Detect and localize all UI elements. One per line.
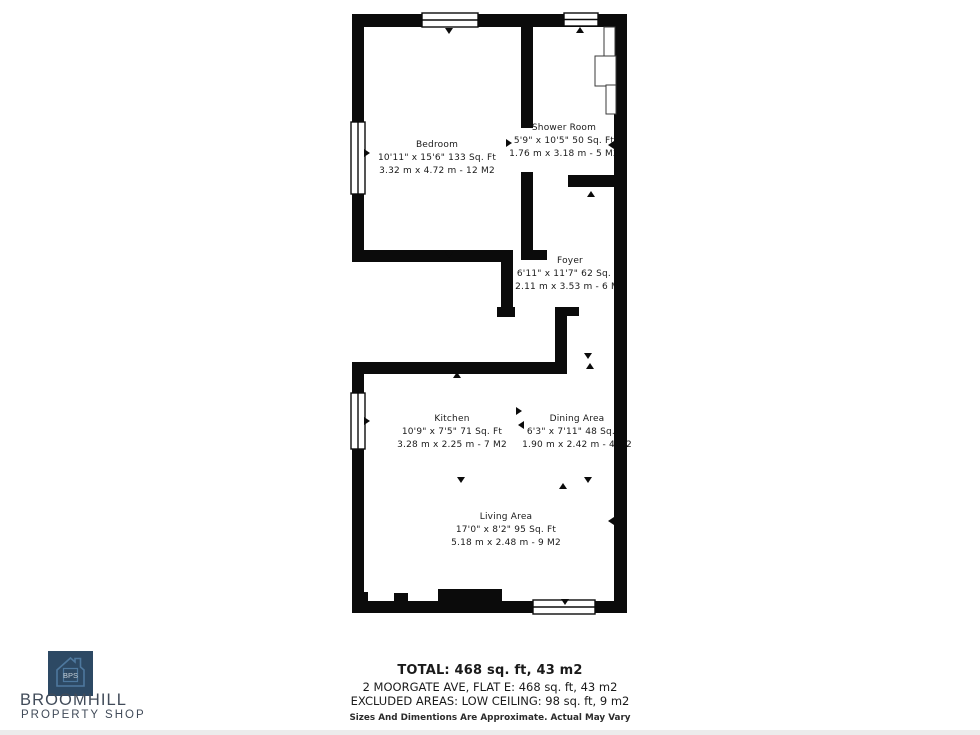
room-dims-m: 1.90 m x 2.42 m - 4 M2 bbox=[467, 439, 687, 452]
room-label-shower-room: Shower Room 5'9" x 10'5" 50 Sq. Ft 1.76 … bbox=[454, 122, 674, 161]
room-dims-m: 5.18 m x 2.48 m - 9 M2 bbox=[396, 537, 616, 550]
room-label-foyer: Foyer 6'11" x 11'7" 62 Sq. Ft 2.11 m x 3… bbox=[460, 255, 680, 294]
door-arrow bbox=[584, 353, 592, 359]
wall-divider-upper bbox=[521, 14, 533, 128]
room-dims-ft: 6'11" x 11'7" 62 Sq. Ft bbox=[460, 268, 680, 281]
house-icon: BPS bbox=[48, 651, 93, 696]
wall-shower-bottom bbox=[568, 175, 615, 187]
room-label-living-area: Living Area 17'0" x 8'2" 95 Sq. Ft 5.18 … bbox=[396, 511, 616, 550]
logo-house-icon: BPS bbox=[48, 651, 93, 696]
door-arrow bbox=[453, 372, 461, 378]
room-dims-m: 1.76 m x 3.18 m - 5 M2 bbox=[454, 148, 674, 161]
wall-bump-small-2 bbox=[394, 593, 408, 601]
floorplan-drawing bbox=[0, 0, 980, 735]
logo-initials: BPS bbox=[63, 671, 78, 680]
excluded-area-text: EXCLUDED AREAS: LOW CEILING: 98 sq. ft, … bbox=[0, 694, 980, 708]
wall-notch bbox=[364, 27, 371, 37]
door-arrow bbox=[577, 180, 585, 186]
room-dims-ft: 5'9" x 10'5" 50 Sq. Ft bbox=[454, 135, 674, 148]
disclaimer-text: Sizes And Dimentions Are Approximate. Ac… bbox=[0, 713, 980, 723]
wall-divider-lower bbox=[521, 172, 533, 253]
room-dims-m: 2.11 m x 3.53 m - 6 M2 bbox=[460, 281, 680, 294]
room-name: Dining Area bbox=[467, 413, 687, 426]
room-name: Foyer bbox=[460, 255, 680, 268]
fixture-basin bbox=[606, 85, 616, 114]
wall-left-lower bbox=[352, 362, 364, 613]
wall-corridor-left bbox=[555, 307, 567, 374]
brand-name: BROOMHILL bbox=[20, 691, 127, 710]
door-arrow bbox=[584, 477, 592, 483]
room-dims-m: 3.32 m x 4.72 m - 12 M2 bbox=[327, 165, 547, 178]
wall-bump-wide bbox=[438, 589, 502, 601]
door-arrow bbox=[561, 599, 569, 605]
wall-top bbox=[352, 14, 627, 27]
room-name: Living Area bbox=[396, 511, 616, 524]
window-shower-top bbox=[564, 13, 598, 26]
wall-bump-small-1 bbox=[358, 592, 368, 601]
address-area-text: 2 MOORGATE AVE, FLAT E: 468 sq. ft, 43 m… bbox=[0, 680, 980, 694]
door-arrow bbox=[576, 27, 584, 33]
floorplan-page: Bedroom 10'11" x 15'6" 133 Sq. Ft 3.32 m… bbox=[0, 0, 980, 735]
bottom-edge-strip bbox=[0, 730, 980, 735]
wall-foyer-left-stub bbox=[497, 307, 515, 317]
door-arrow bbox=[559, 483, 567, 489]
room-name: Shower Room bbox=[454, 122, 674, 135]
door-arrow bbox=[445, 28, 453, 34]
room-label-dining-area: Dining Area 6'3" x 7'11" 48 Sq. Ft 1.90 … bbox=[467, 413, 687, 452]
wall-bottom bbox=[352, 601, 627, 613]
door-arrow bbox=[445, 252, 453, 258]
fixture-cabinet bbox=[604, 27, 615, 57]
door-arrow bbox=[457, 477, 465, 483]
bathroom-fixtures-layer bbox=[595, 27, 616, 114]
wall-corridor-stub bbox=[555, 307, 579, 316]
fixture-shower-unit bbox=[595, 56, 616, 86]
door-arrow bbox=[587, 191, 595, 197]
wall-kitchen-top bbox=[352, 362, 567, 374]
room-dims-ft: 17'0" x 8'2" 95 Sq. Ft bbox=[396, 524, 616, 537]
window-living-bottom bbox=[533, 600, 595, 614]
room-dims-ft: 6'3" x 7'11" 48 Sq. Ft bbox=[467, 426, 687, 439]
window-bedroom-top bbox=[422, 13, 478, 27]
total-area-text: TOTAL: 468 sq. ft, 43 m2 bbox=[0, 663, 980, 678]
door-arrow bbox=[586, 363, 594, 369]
wall-left-upper bbox=[352, 14, 364, 262]
brand-tagline: PROPERTY SHOP bbox=[21, 709, 146, 721]
